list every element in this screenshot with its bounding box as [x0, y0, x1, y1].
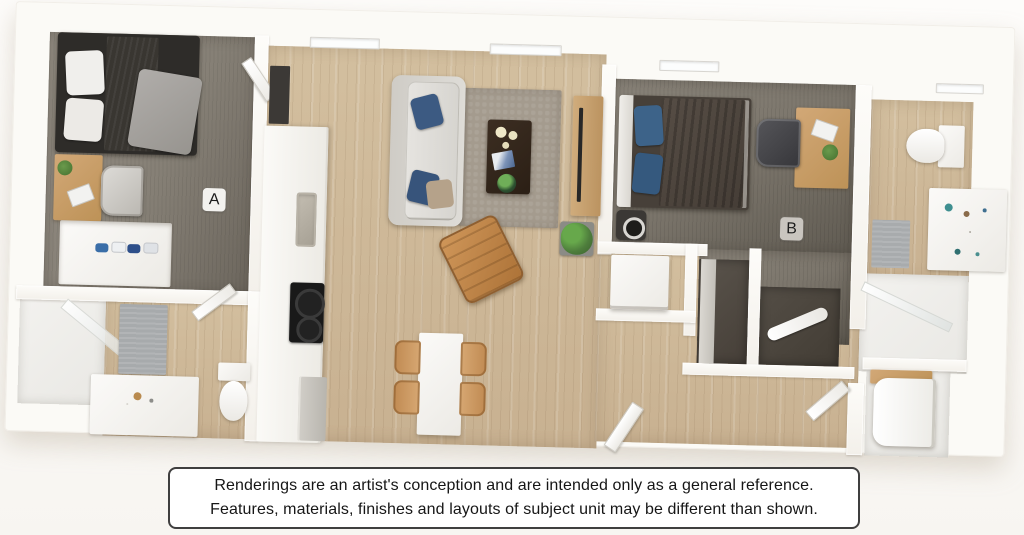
kitchen-sink	[295, 192, 316, 247]
room-label-b: B	[780, 217, 804, 241]
washer-b	[872, 378, 936, 448]
kitchen-pantry	[269, 66, 291, 125]
room-label-a-text: A	[209, 191, 220, 209]
bath-mat-a	[118, 304, 168, 375]
room-label-a: A	[202, 188, 226, 212]
room-label-b-text: B	[786, 220, 797, 238]
wall-bedroom-b-bath-lower	[846, 383, 864, 455]
dining-chair-3	[460, 342, 487, 377]
bed-b-duvet	[659, 98, 750, 208]
window-bathroom-b	[936, 83, 984, 94]
toilet-a-tank	[218, 362, 250, 381]
desk-chair-b	[756, 118, 801, 167]
living-plant-leaves	[560, 222, 593, 255]
apartment-floor-plan: A	[5, 1, 1016, 457]
shoe-2	[111, 242, 126, 253]
bed-b-pillow-1	[634, 105, 664, 147]
desk-chair-a	[100, 165, 143, 216]
wall-niche-bottom	[596, 308, 696, 323]
bed-b-pillow-2	[631, 152, 663, 195]
shoe-3	[127, 244, 140, 253]
tv-console	[570, 96, 603, 217]
window-living-1	[310, 37, 380, 50]
kitchen-fridge	[297, 377, 327, 442]
bed-a-duvet-gray	[127, 68, 203, 155]
shoe-1	[95, 243, 108, 252]
bed-a-pillow-2	[63, 97, 104, 142]
dining-chair-4	[459, 382, 486, 417]
vanity-b	[927, 188, 1007, 272]
sofa-pillow-tan	[425, 179, 454, 210]
bed-a-pillow-1	[65, 50, 105, 96]
window-living-2	[490, 43, 562, 56]
niche-appliance	[610, 255, 669, 310]
window-bedroom-b	[659, 60, 719, 73]
bath-mat-b	[871, 219, 910, 268]
dining-chair-1	[394, 340, 421, 375]
shoe-4	[143, 242, 158, 253]
dining-chair-2	[393, 380, 420, 415]
disclaimer-line-2: Features, materials, finishes and layout…	[210, 498, 818, 522]
disclaimer-line-1: Renderings are an artist's conception an…	[214, 474, 813, 498]
bed-b-headboard	[617, 95, 634, 207]
disclaimer-box: Renderings are an artist's conception an…	[168, 467, 860, 529]
toilet-b-bowl	[906, 128, 945, 163]
closet-1-door	[699, 259, 717, 363]
floor-plan-stage: A	[0, 0, 1024, 535]
dining-table	[417, 333, 464, 436]
vanity-a	[89, 374, 199, 437]
